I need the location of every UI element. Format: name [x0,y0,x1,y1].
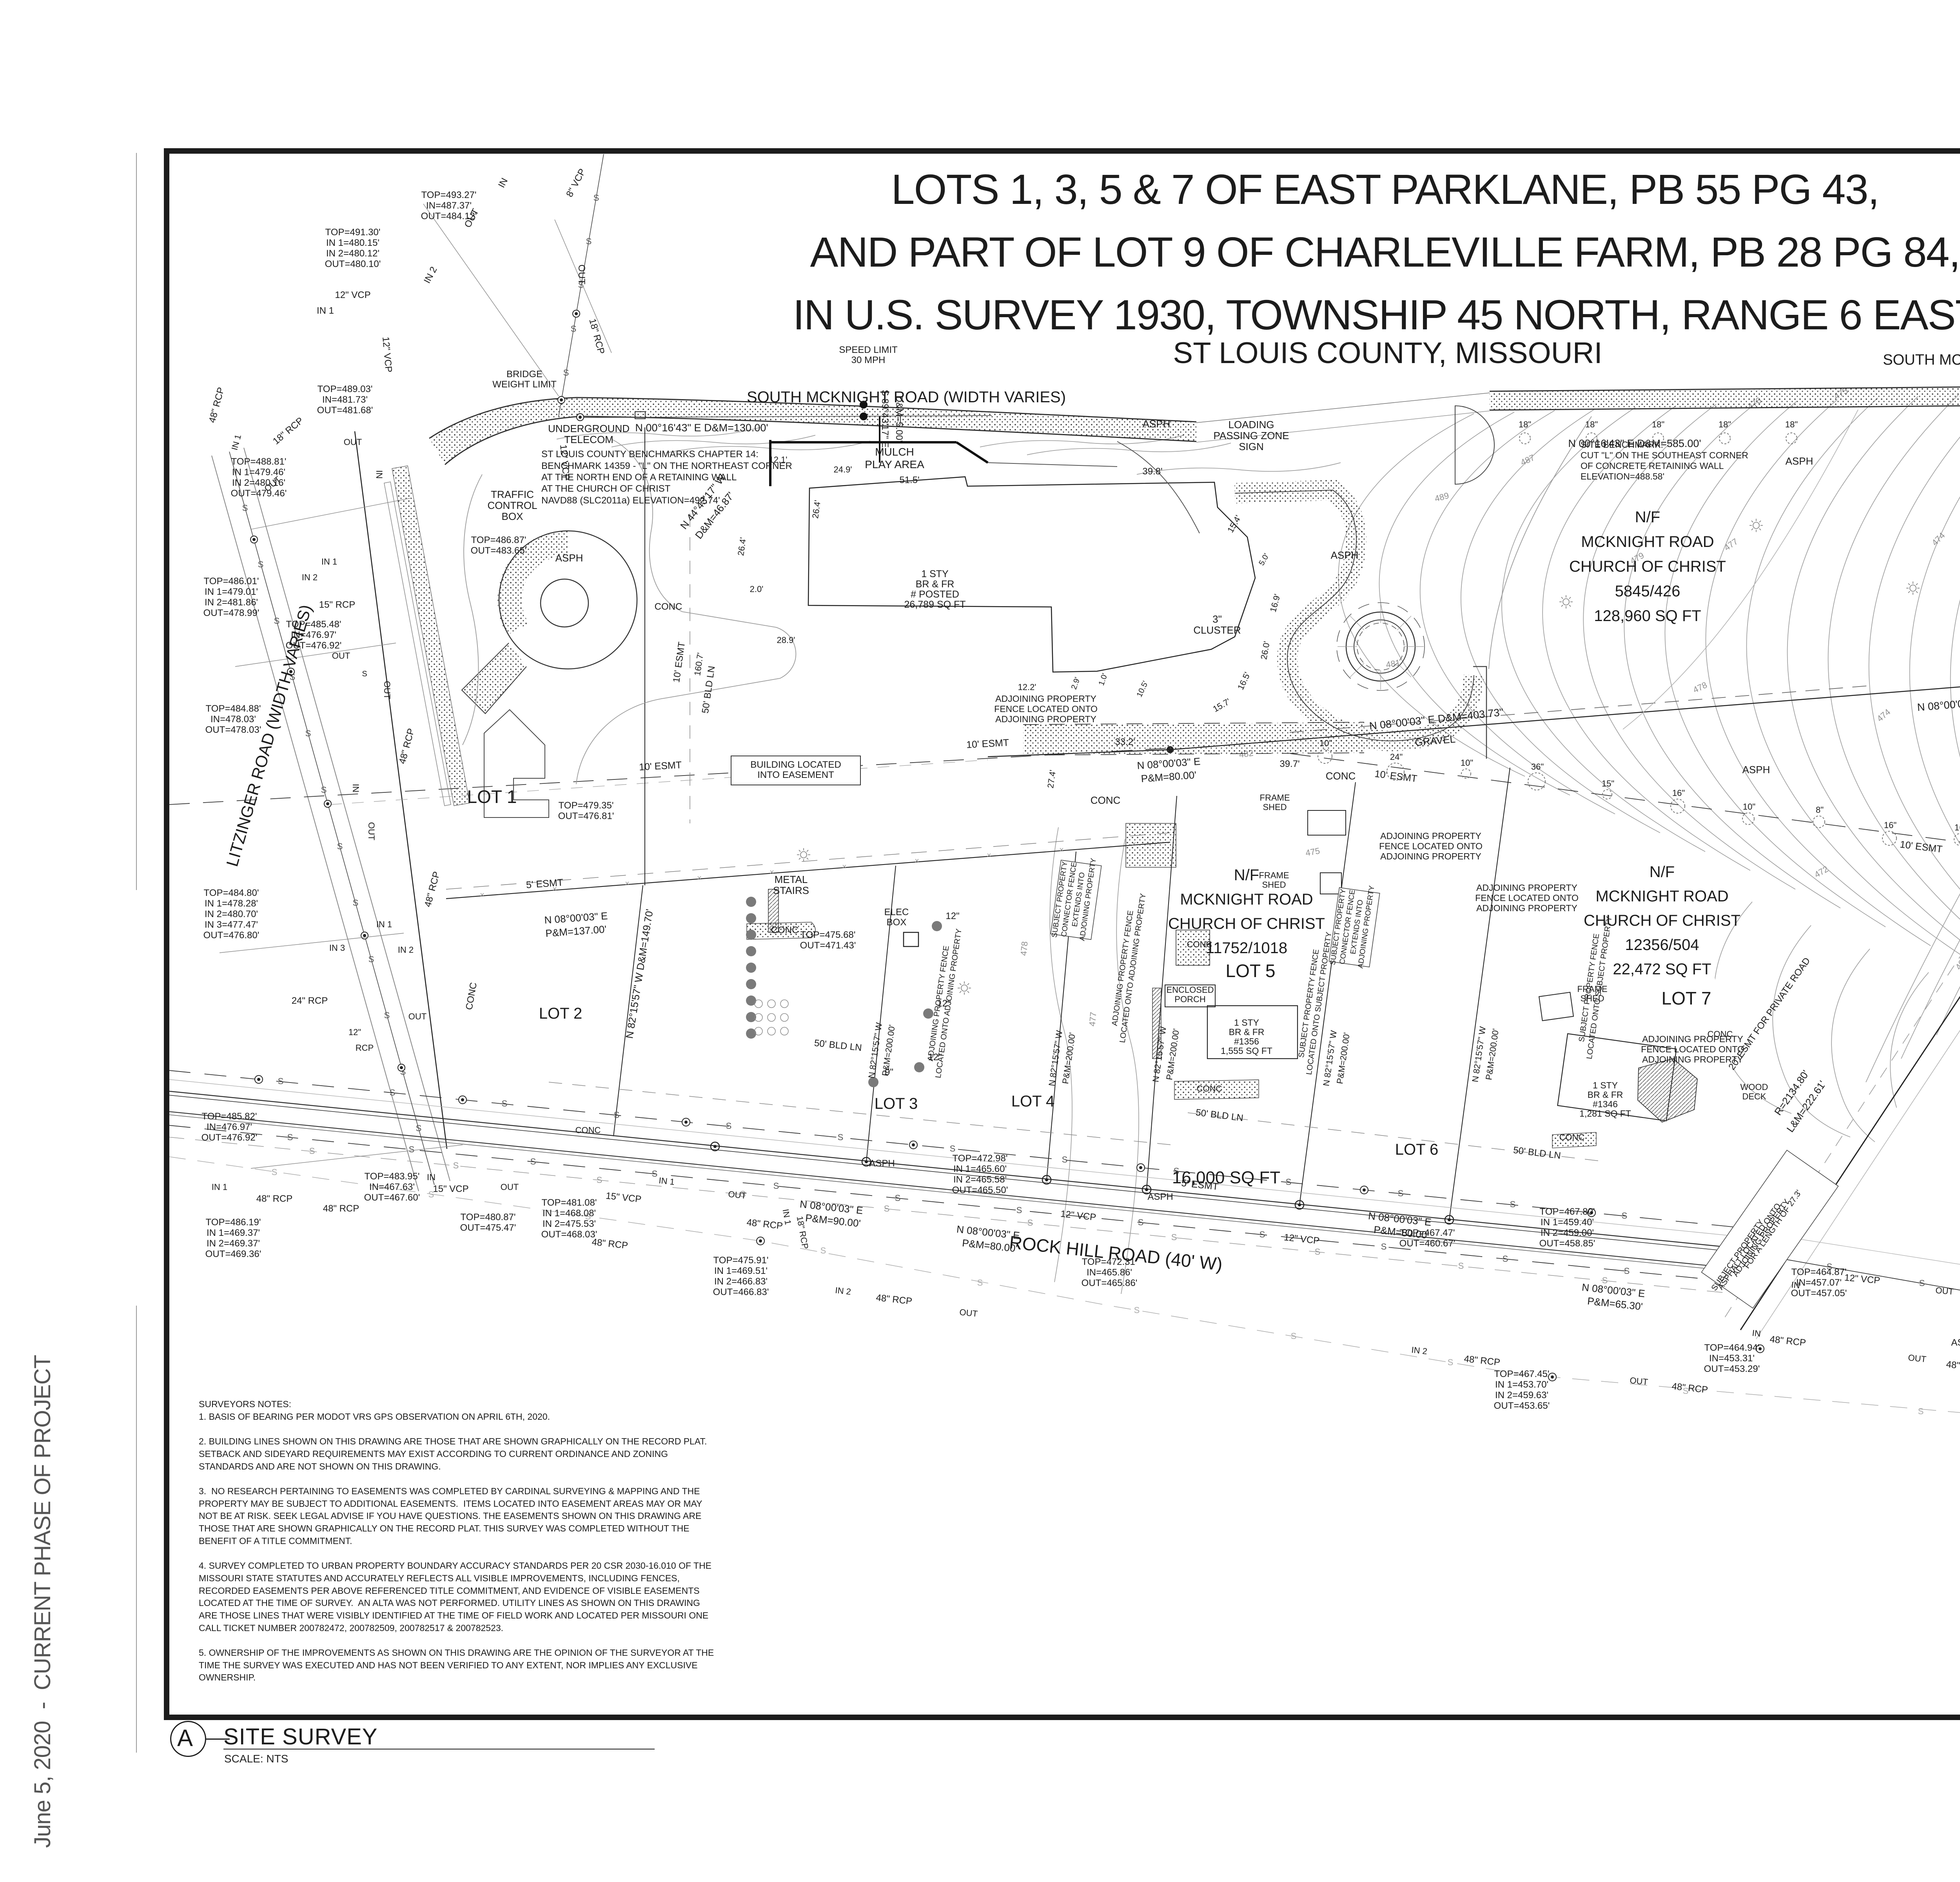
svg-text:OUT=476.81': OUT=476.81' [558,811,614,821]
svg-text:OUT=468.03': OUT=468.03' [541,1229,597,1240]
svg-text:TOP=484.88': TOP=484.88' [206,703,261,714]
svg-text:26.0': 26.0' [1259,640,1272,660]
svg-text:15": 15" [1602,779,1614,788]
svg-text:472: 472 [1813,864,1830,879]
svg-text:S: S [1919,1278,1925,1288]
svg-text:ADJOINING PROPERTY: ADJOINING PROPERTY [1380,851,1481,861]
svg-text:474: 474 [1930,530,1947,548]
svg-text:IN 1: IN 1 [376,919,392,929]
svg-text:IN 1: IN 1 [229,433,243,451]
svg-text:10": 10" [1743,802,1755,812]
svg-text:10' ESMT: 10' ESMT [966,737,1009,750]
svg-text:BOX: BOX [502,510,523,522]
svg-text:CONC: CONC [1091,794,1121,806]
svg-text:S: S [353,898,359,908]
svg-text:IN 2: IN 2 [422,265,439,285]
svg-text:TOP=488.81': TOP=488.81' [231,456,287,467]
svg-text:IN 2=459.63': IN 2=459.63' [1495,1390,1548,1401]
svg-text:S: S [820,1246,826,1255]
svg-text:IN 1: IN 1 [212,1182,227,1192]
svg-text:IN=476.97': IN=476.97' [207,1122,252,1132]
svg-text:22,472 SQ FT: 22,472 SQ FT [1613,961,1711,978]
svg-text:S: S [305,728,311,738]
svg-text:S: S [502,1099,508,1108]
svg-text:478: 478 [1018,941,1029,956]
svg-text:IN 2=466.83': IN 2=466.83' [714,1276,768,1287]
svg-text:OUT=469.36': OUT=469.36' [205,1249,261,1259]
svg-text:S: S [895,1193,901,1203]
svg-text:P&M=80.00': P&M=80.00' [1141,769,1197,785]
svg-text:OUT: OUT [576,265,587,285]
svg-text:OUT=458.85': OUT=458.85' [1539,1238,1595,1249]
svg-text:33.2': 33.2' [1115,737,1135,747]
svg-text:S: S [1062,1155,1068,1164]
svg-text:15.7': 15.7' [1211,696,1232,714]
svg-text:S: S [337,841,343,851]
svg-text:OUT=478.99': OUT=478.99' [203,608,260,618]
svg-text:S: S [950,1144,956,1154]
svg-text:TOP=481.08': TOP=481.08' [542,1197,597,1208]
svg-text:30 MPH: 30 MPH [851,355,886,365]
svg-text:11752/1018: 11752/1018 [1206,939,1287,957]
svg-text:IN: IN [1791,1280,1800,1290]
svg-text:18" RCP: 18" RCP [587,318,606,355]
svg-text:TELECOM: TELECOM [564,434,613,445]
svg-text:IN 2: IN 2 [398,945,414,955]
svg-text:FENCE LOCATED ONTO: FENCE LOCATED ONTO [1475,893,1579,903]
svg-text:OUT=476.92': OUT=476.92' [201,1132,258,1143]
svg-text:CHURCH OF CHRIST: CHURCH OF CHRIST [1569,558,1726,575]
svg-text:12" VCP: 12" VCP [335,290,370,300]
svg-text:CONC: CONC [1326,770,1356,782]
svg-text:12356/504: 12356/504 [1625,936,1699,954]
svg-text:OUT: OUT [728,1189,747,1201]
svg-text:5.0': 5.0' [1257,552,1271,567]
svg-text:1 STY: 1 STY [921,569,949,579]
svg-text:IN 1=453.70': IN 1=453.70' [1495,1379,1548,1390]
svg-text:BUILDING LOCATED: BUILDING LOCATED [750,759,841,770]
svg-text:16": 16" [1672,788,1685,798]
svg-text:OUT=467.60': OUT=467.60' [364,1192,420,1203]
svg-text:UNDERGROUND: UNDERGROUND [548,423,630,434]
svg-text:MCKNIGHT ROAD: MCKNIGHT ROAD [1180,891,1313,908]
svg-text:18": 18" [1785,420,1798,429]
svg-text:N/F: N/F [1650,863,1675,881]
svg-text:18": 18" [1719,420,1731,429]
svg-text:IN 1=469.51': IN 1=469.51' [714,1266,768,1276]
svg-text:48" RCP: 48" RCP [397,727,417,765]
svg-text:SIGN: SIGN [1239,441,1264,452]
svg-text:LOT 5: LOT 5 [1226,961,1276,981]
svg-text:18": 18" [1585,420,1598,429]
svg-text:12" VCP: 12" VCP [1060,1208,1097,1223]
svg-text:STAIRS: STAIRS [773,885,809,896]
svg-text:TOP=464.94': TOP=464.94' [1704,1342,1760,1353]
svg-text:1.0': 1.0' [1097,672,1109,687]
svg-text:RCP: RCP [356,1043,374,1053]
svg-text:×: × [625,879,630,888]
svg-text:CONC: CONC [1187,939,1212,949]
svg-text:S: S [453,1161,459,1170]
svg-text:S: S [1458,1261,1464,1271]
svg-text:N/F: N/F [1234,867,1259,884]
svg-text:IN=476.97': IN=476.97' [291,630,336,640]
svg-text:ADJOINING PROPERTY: ADJOINING PROPERTY [995,694,1096,704]
svg-text:IN: IN [496,176,510,190]
svg-text:×: × [769,868,774,877]
svg-text:# POSTED: # POSTED [911,589,959,600]
svg-text:5845/426: 5845/426 [1615,583,1681,600]
svg-text:CONC: CONC [771,925,799,936]
svg-text:MCKNIGHT ROAD: MCKNIGHT ROAD [1581,533,1714,550]
svg-text:OUT=465.86': OUT=465.86' [1082,1278,1138,1288]
svg-text:24.9': 24.9' [833,465,852,474]
svg-text:IN 2=475.53': IN 2=475.53' [543,1219,596,1229]
svg-text:×: × [915,857,919,865]
svg-text:160.7': 160.7' [692,652,705,676]
svg-text:8" VCP: 8" VCP [564,167,588,199]
svg-text:SHED: SHED [1263,802,1287,812]
svg-text:P&M=137.00': P&M=137.00' [545,923,607,939]
svg-text:39.7': 39.7' [1279,759,1299,769]
svg-text:BR & FR: BR & FR [1229,1027,1265,1037]
svg-text:12": 12" [348,1027,361,1037]
svg-text:MULCH: MULCH [875,446,914,458]
svg-text:S: S [390,1088,396,1097]
svg-text:24" RCP: 24" RCP [292,995,328,1006]
svg-text:N 08°00'03" E P&M=163.73': N 08°00'03" E P&M=163.73' [1917,691,1960,713]
svg-text:CONC: CONC [575,1125,601,1135]
svg-text:TOP=493.27': TOP=493.27' [421,190,477,200]
svg-text:IN=481.73': IN=481.73' [322,394,368,405]
svg-text:S: S [597,1175,603,1185]
svg-text:SPEED LIMIT: SPEED LIMIT [839,345,898,355]
svg-text:PORCH: PORCH [1174,994,1205,1004]
svg-text:METAL: METAL [775,874,808,885]
svg-text:S: S [384,1010,390,1020]
svg-text:ASPH: ASPH [1786,455,1813,467]
svg-text:10' ESMT: 10' ESMT [1374,768,1418,785]
svg-text:PASSING ZONE: PASSING ZONE [1213,430,1289,441]
svg-text:ST LOUIS COUNTY BENCHMARKS CHA: ST LOUIS COUNTY BENCHMARKS CHAPTER 14: [541,449,759,460]
svg-text:OUT: OUT [382,681,392,699]
svg-text:×: × [1059,846,1064,854]
svg-text:S: S [530,1157,536,1166]
svg-text:10' ESMT: 10' ESMT [639,759,682,773]
svg-text:×: × [842,863,847,871]
svg-text:ASPH: ASPH [1143,418,1171,430]
svg-text:IN: IN [351,784,361,792]
svg-text:IN=467.63': IN=467.63' [369,1182,415,1192]
svg-text:16.9': 16.9' [1268,593,1282,613]
svg-text:FENCE LOCATED ONTO: FENCE LOCATED ONTO [994,704,1098,714]
svg-text:ASPH: ASPH [1951,1337,1960,1348]
svg-text:48" RCP: 48" RCP [1769,1334,1806,1348]
svg-text:LOT 1: LOT 1 [467,787,517,807]
svg-text:LOT 3: LOT 3 [875,1095,918,1112]
svg-text:S: S [1291,1331,1297,1341]
svg-text:OUT=475.47': OUT=475.47' [460,1223,516,1233]
svg-text:S: S [773,1181,779,1191]
svg-text:OUT=481.68': OUT=481.68' [317,405,373,416]
svg-text:ELEC: ELEC [884,907,909,917]
svg-text:TOP=472.31': TOP=472.31' [1082,1257,1137,1267]
svg-text:S: S [242,503,248,513]
svg-text:S: S [1134,1305,1140,1315]
svg-text:S: S [321,785,327,795]
svg-text:S: S [1315,1247,1321,1257]
svg-text:#1356: #1356 [1234,1036,1259,1046]
svg-text:S: S [1622,1211,1628,1221]
svg-text:12" VCP: 12" VCP [1844,1272,1880,1286]
svg-text:IN 2=459.00': IN 2=459.00' [1541,1228,1594,1238]
svg-text:S: S [563,368,569,378]
svg-text:477: 477 [1722,536,1739,553]
svg-text:CHURCH OF CHRIST: CHURCH OF CHRIST [1168,915,1325,932]
svg-text:ASPH: ASPH [1742,764,1770,776]
svg-text:S: S [1503,1254,1508,1264]
svg-text:IN 1=468.08': IN 1=468.08' [543,1208,596,1219]
svg-text:481: 481 [1385,658,1401,670]
svg-text:IN 2=481.86': IN 2=481.86' [205,597,258,608]
svg-text:OUT=466.83': OUT=466.83' [713,1287,769,1297]
svg-text:×: × [987,851,991,860]
svg-text:IN 2=480.70': IN 2=480.70' [205,909,258,919]
svg-text:26.4': 26.4' [736,537,748,556]
svg-text:12" VCP: 12" VCP [380,336,394,373]
svg-text:CONTROL: CONTROL [487,500,537,511]
svg-text:TOP=467.80': TOP=467.80' [1540,1206,1595,1217]
svg-text:×: × [480,891,485,899]
svg-text:48" RCP: 48" RCP [256,1194,293,1204]
svg-text:S: S [1016,1205,1022,1215]
svg-text:15" VCP: 15" VCP [433,1184,468,1194]
svg-text:LOT 2: LOT 2 [539,1005,582,1022]
svg-text:TOP=467.45': TOP=467.45' [1494,1369,1550,1379]
svg-text:IN 1=478.28': IN 1=478.28' [205,898,258,909]
svg-text:S: S [368,954,374,964]
svg-text:39.8': 39.8' [1142,466,1162,477]
svg-text:1 STY: 1 STY [1593,1080,1618,1090]
svg-text:26,789 SQ FT: 26,789 SQ FT [904,599,965,610]
svg-text:OUT=483.65': OUT=483.65' [471,545,527,556]
svg-text:S: S [1448,1357,1454,1367]
svg-text:NAVD88 (SLC2011a) ELEVATION=49: NAVD88 (SLC2011a) ELEVATION=492.74' [541,495,720,506]
svg-text:18" RCP: 18" RCP [271,415,305,447]
svg-text:OUT: OUT [344,437,362,447]
svg-text:OUT: OUT [501,1182,519,1192]
svg-text:TOP=484.80': TOP=484.80' [204,888,259,898]
svg-text:S: S [1027,1218,1033,1228]
svg-text:3": 3" [1212,613,1222,625]
svg-text:CONC: CONC [1559,1132,1585,1142]
svg-text:IN 2: IN 2 [835,1285,851,1297]
svg-text:48" RCP: 48" RCP [423,870,442,908]
svg-text:5' ESMT: 5' ESMT [526,877,564,891]
svg-text:WOOD: WOOD [1740,1082,1768,1092]
svg-text:TOP=485.82': TOP=485.82' [202,1111,257,1122]
svg-text:TOP=491.30': TOP=491.30' [325,227,381,238]
svg-text:15" RCP: 15" RCP [319,599,356,610]
svg-text:OUT=476.80': OUT=476.80' [203,930,260,941]
svg-text:LOT 6: LOT 6 [1395,1141,1438,1158]
svg-text:S: S [287,1132,293,1142]
svg-text:TOP=483.95': TOP=483.95' [365,1171,420,1182]
svg-text:ADJOINING PROPERTY: ADJOINING PROPERTY [1642,1034,1743,1044]
svg-text:ASPH: ASPH [1331,549,1359,561]
svg-text:S: S [1138,1217,1144,1227]
svg-text:FENCE LOCATED ONTO: FENCE LOCATED ONTO [1379,841,1483,851]
svg-text:10' ESMT: 10' ESMT [671,641,687,683]
svg-text:BRIDGE: BRIDGE [506,369,543,380]
svg-text:LOADING: LOADING [1228,419,1274,431]
svg-text:SHED: SHED [1262,880,1286,890]
svg-text:IN=465.86': IN=465.86' [1087,1267,1132,1278]
svg-text:466: 466 [1953,954,1960,971]
svg-text:OUT=476.92': OUT=476.92' [286,640,342,651]
svg-text:OUT=478.03': OUT=478.03' [205,725,261,735]
svg-text:474: 474 [1875,707,1892,724]
svg-text:OUT: OUT [1935,1285,1954,1297]
svg-text:10.5': 10.5' [1135,679,1150,698]
svg-text:1,555 SQ FT: 1,555 SQ FT [1221,1046,1272,1056]
svg-text:TOP=486.19': TOP=486.19' [206,1217,261,1228]
svg-text:S: S [1259,1230,1265,1239]
svg-text:CUT "L" ON THE SOUTHEAST CORNE: CUT "L" ON THE SOUTHEAST CORNER [1581,450,1748,460]
svg-text:CONC: CONC [464,982,479,1011]
svg-text:S: S [652,1169,658,1179]
svg-text:1,281 SQ FT: 1,281 SQ FT [1579,1108,1631,1119]
svg-text:S: S [726,1121,732,1131]
svg-text:27.4': 27.4' [1045,769,1058,789]
svg-text:ELEVATION=488.58': ELEVATION=488.58' [1581,471,1664,481]
svg-text:FRAME: FRAME [1259,870,1289,880]
svg-text:ENCLOSED: ENCLOSED [1166,985,1214,995]
svg-text:TOP=489.03': TOP=489.03' [318,384,373,394]
svg-text:IN: IN [427,1172,436,1182]
svg-text:OUT: OUT [1907,1353,1927,1364]
svg-text:S: S [593,193,599,203]
svg-text:S: S [1286,1177,1292,1187]
svg-text:FRAME: FRAME [1260,793,1290,803]
svg-text:TOP=475.91': TOP=475.91' [713,1255,769,1266]
svg-text:OUT: OUT [959,1307,978,1319]
svg-text:TOP=479.35': TOP=479.35' [559,800,614,811]
svg-text:48" RCP: 48" RCP [746,1217,783,1232]
svg-text:ADJOINING PROPERTY: ADJOINING PROPERTY [1642,1054,1743,1065]
svg-text:IN 2=465.58': IN 2=465.58' [953,1174,1007,1185]
svg-text:S: S [1381,1242,1387,1252]
svg-text:50' BLD LN: 50' BLD LN [814,1038,862,1054]
svg-text:IN 2=480.12': IN 2=480.12' [326,248,379,259]
svg-text:489: 489 [1434,490,1450,504]
svg-text:S: S [274,616,280,626]
svg-text:S: S [1398,1188,1404,1198]
svg-text:ADJOINING PROPERTY: ADJOINING PROPERTY [1476,883,1577,893]
svg-text:TOP=486.87': TOP=486.87' [471,535,526,545]
svg-text:N 00°16'43" E D&M=130.00': N 00°16'43" E D&M=130.00' [635,422,768,434]
svg-text:478: 478 [1691,680,1709,695]
svg-text:IN 2: IN 2 [1411,1345,1428,1356]
svg-text:S: S [258,560,264,569]
svg-text:MCKNIGHT ROAD: MCKNIGHT ROAD [1595,888,1728,905]
svg-text:ASPH: ASPH [869,1158,895,1169]
svg-text:128,960 SQ FT: 128,960 SQ FT [1594,607,1701,625]
svg-text:2.0': 2.0' [750,584,764,594]
svg-text:48" RCP: 48" RCP [207,386,227,424]
svg-text:16": 16" [1955,823,1960,832]
svg-text:TOP=485.48': TOP=485.48' [286,619,341,630]
svg-text:S: S [838,1132,844,1142]
svg-text:BOX: BOX [887,917,907,928]
svg-text:IN 1=459.40': IN 1=459.40' [1541,1217,1594,1228]
svg-text:IN=457.07': IN=457.07' [1796,1277,1842,1288]
svg-text:S: S [1624,1266,1630,1276]
svg-text:OUT=480.10': OUT=480.10' [325,259,381,269]
svg-text:24": 24" [1390,752,1403,762]
svg-text:DECK: DECK [1742,1092,1766,1101]
svg-text:48" RCP: 48" RCP [323,1203,359,1214]
svg-text:S: S [571,324,577,334]
svg-text:48" RCP: 48" RCP [875,1292,913,1307]
svg-text:CLUSTER: CLUSTER [1193,624,1241,636]
svg-text:18": 18" [1519,420,1531,429]
svg-text:OUT=479.46': OUT=479.46' [231,488,287,499]
svg-text:LOT 7: LOT 7 [1662,988,1711,1008]
svg-text:S: S [416,1123,422,1133]
svg-text:475: 475 [1305,846,1321,858]
svg-text:IN 1: IN 1 [317,305,334,316]
svg-text:48" RCP: 48" RCP [591,1237,628,1251]
svg-text:OUT: OUT [332,651,350,661]
svg-text:10": 10" [1461,758,1473,768]
svg-text:TOP=475.68': TOP=475.68' [800,930,856,940]
svg-text:S: S [309,1146,315,1156]
svg-text:48" RCP: 48" RCP [1945,1359,1960,1373]
svg-text:S 89°43'17" E: S 89°43'17" E [880,390,890,448]
svg-text:SOUTH MCKNIGHT ROAD (WIDTH VAR: SOUTH MCKNIGHT ROAD (WIDTH VARIES) [1883,352,1960,368]
svg-text:N 82°15'57" W D&M=149.70': N 82°15'57" W D&M=149.70' [623,908,655,1039]
svg-text:8": 8" [1816,805,1824,815]
svg-text:CONC: CONC [1197,1084,1222,1094]
svg-text:SITE BENCHMARK:: SITE BENCHMARK: [1581,440,1663,450]
svg-text:S: S [1171,1232,1177,1242]
svg-text:TRAFFIC: TRAFFIC [491,489,534,500]
svg-text:TOP=464.87': TOP=464.87' [1791,1267,1847,1277]
svg-text:16.5': 16.5' [1236,670,1252,691]
svg-text:OUT: OUT [367,822,376,840]
svg-text:IN=478.03': IN=478.03' [211,714,256,725]
svg-text:OUT=453.65': OUT=453.65' [1494,1401,1550,1411]
svg-text:S: S [272,1167,278,1177]
svg-text:12.1': 12.1' [769,455,787,465]
svg-text:OUT=460.67': OUT=460.67' [1399,1238,1455,1249]
svg-text:28.9': 28.9' [777,635,795,645]
svg-text:S: S [278,1076,284,1086]
svg-text:ADJOINING PROPERTY: ADJOINING PROPERTY [995,714,1096,724]
svg-text:IN 1=465.60': IN 1=465.60' [953,1164,1007,1174]
svg-text:12": 12" [946,911,959,921]
svg-text:36": 36" [1531,762,1544,772]
svg-text:BENCHMARK 14359 - "L" ON THE N: BENCHMARK 14359 - "L" ON THE NORTHEAST C… [541,461,792,471]
svg-text:OF CONCRETE RETAINING WALL: OF CONCRETE RETAINING WALL [1581,461,1724,471]
svg-text:OUT=471.43': OUT=471.43' [800,940,856,951]
svg-text:BR & FR: BR & FR [1588,1090,1623,1100]
svg-text:IN 1: IN 1 [658,1175,675,1187]
svg-text:IN 2=469.37': IN 2=469.37' [207,1238,260,1249]
svg-text:INTO EASEMENT: INTO EASEMENT [757,770,834,780]
svg-text:CONC: CONC [655,601,682,612]
